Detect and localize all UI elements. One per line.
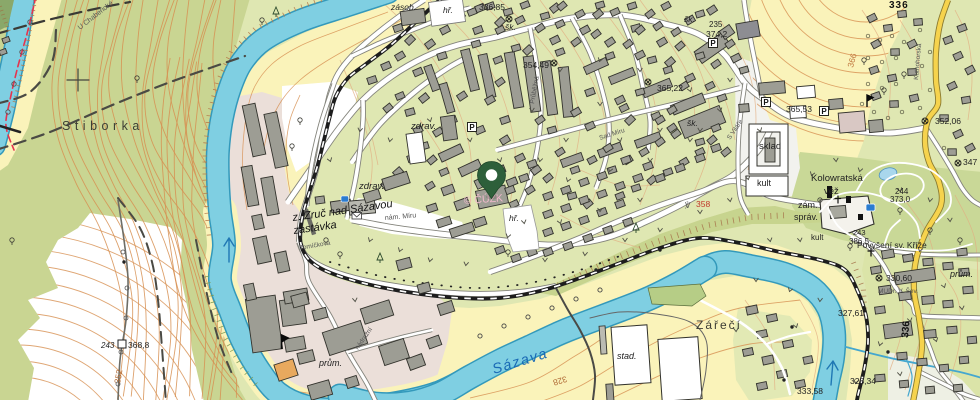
svg-text:sklad: sklad	[759, 141, 781, 152]
svg-text:P: P	[763, 98, 769, 107]
svg-text:336: 336	[900, 320, 912, 338]
svg-text:235: 235	[709, 20, 723, 29]
svg-text:šk.: šk.	[505, 22, 516, 32]
svg-text:stad.: stad.	[617, 351, 637, 361]
svg-text:hř.: hř.	[443, 5, 453, 15]
svg-text:Zářečí: Zářečí	[696, 318, 742, 332]
svg-text:zdrav.: zdrav.	[358, 181, 384, 192]
svg-text:© ČÚZK: © ČÚZK	[463, 191, 503, 207]
svg-text:kult: kult	[757, 178, 772, 188]
svg-text:správ.: správ.	[794, 212, 818, 222]
svg-text:374,2: 374,2	[706, 29, 728, 39]
svg-text:365,22: 365,22	[657, 83, 683, 93]
svg-text:328,34: 328,34	[850, 376, 876, 386]
svg-text:℣: ℣	[685, 201, 691, 210]
svg-text:352,06: 352,06	[935, 116, 961, 126]
svg-text:358: 358	[696, 199, 710, 209]
svg-text:373,0: 373,0	[890, 195, 911, 204]
svg-text:P: P	[821, 107, 827, 116]
svg-text:zám.: zám.	[798, 200, 818, 210]
svg-text:327,61: 327,61	[838, 308, 864, 318]
svg-text:MUDr. V. Šev.: MUDr. V. Šev.	[878, 286, 918, 295]
svg-text:P: P	[469, 123, 475, 132]
svg-text:kult: kult	[811, 233, 824, 242]
svg-text:šk.: šk.	[684, 14, 695, 24]
svg-text:347: 347	[963, 157, 977, 167]
svg-text:330,60: 330,60	[886, 273, 912, 283]
svg-text:365,53: 365,53	[786, 104, 812, 114]
svg-text:věž: věž	[824, 186, 839, 197]
svg-text:zásob.: zásob.	[390, 2, 416, 12]
svg-text:zdrav.: zdrav.	[410, 121, 436, 132]
svg-text:333,58: 333,58	[797, 386, 823, 396]
svg-text:prům.: prům.	[949, 269, 973, 279]
svg-text:hř.: hř.	[509, 213, 519, 223]
svg-text:243: 243	[853, 228, 866, 237]
svg-text:P: P	[710, 39, 716, 48]
svg-text:prům.: prům.	[318, 358, 342, 368]
svg-text:Povýšení sv. Kříže: Povýšení sv. Kříže	[857, 240, 927, 250]
svg-text:336,85: 336,85	[479, 2, 505, 12]
svg-text:336: 336	[889, 0, 909, 11]
svg-text:368,8: 368,8	[128, 340, 150, 350]
svg-text:šk.: šk.	[687, 118, 698, 128]
svg-text:Stiborka: Stiborka	[62, 119, 144, 133]
svg-text:Kolowratská: Kolowratská	[811, 173, 863, 184]
svg-text:354,49: 354,49	[523, 60, 549, 70]
svg-text:243: 243	[100, 341, 115, 350]
